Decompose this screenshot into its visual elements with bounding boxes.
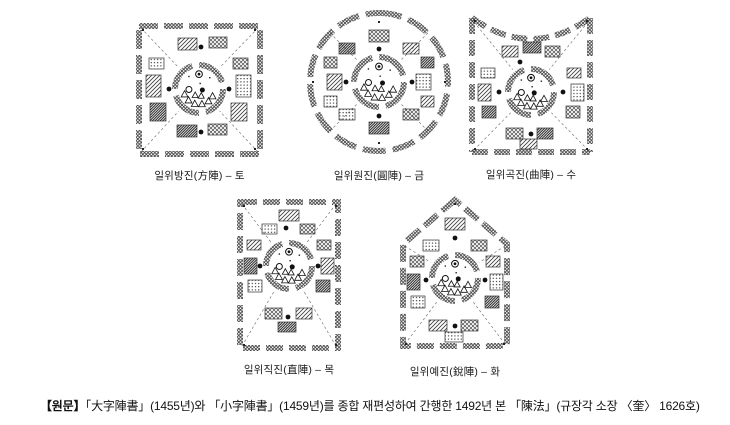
figure-caption: 【원문】「大字陣書」(1455년)와 「小字陣書」(1459년)를 종합 재편성…: [40, 398, 700, 414]
pointed-formation-diagram: [393, 194, 517, 358]
formation-figure-curved: 일위곡진(曲陣) – 수: [464, 6, 598, 182]
square-formation-diagram: [131, 20, 268, 160]
formation-figure-pointed: 일위예진(銳陣) – 화: [393, 194, 517, 379]
circle-formation-diagram: [294, 6, 464, 158]
straight-formation-diagram: [232, 196, 346, 354]
formation-figure-circle: 일위원진(圓陣) – 금: [294, 6, 464, 183]
curved-formation-diagram: [464, 6, 598, 162]
formation-label-pointed: 일위예진(銳陣) – 화: [393, 364, 517, 379]
document-page: 일위방진(方陣) – 토 일위원진(圓陣) – 금 일위곡진(曲陣) – 수 일…: [0, 0, 730, 425]
formation-label-curved: 일위곡진(曲陣) – 수: [464, 167, 598, 182]
formation-label-circle: 일위원진(圓陣) – 금: [294, 168, 464, 183]
caption-source-tag: 【원문】: [40, 399, 85, 413]
formation-label-straight: 일위직진(直陣) – 목: [232, 362, 346, 377]
formation-label-square: 일위방진(方陣) – 토: [131, 168, 268, 183]
formation-figure-square: 일위방진(方陣) – 토: [131, 20, 268, 183]
caption-text: 「大字陣書」(1455년)와 「小字陣書」(1459년)를 종합 재편성하여 간…: [85, 399, 699, 413]
formation-figure-straight: 일위직진(直陣) – 목: [232, 196, 346, 377]
